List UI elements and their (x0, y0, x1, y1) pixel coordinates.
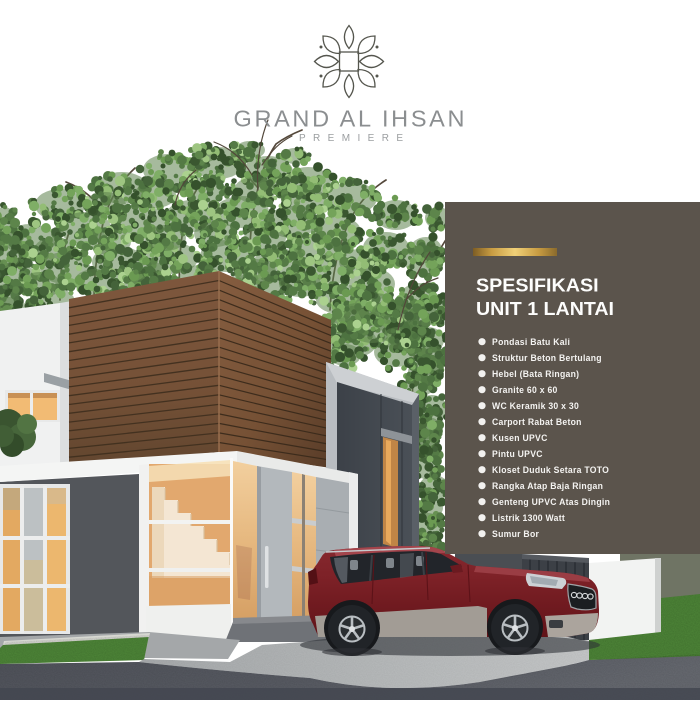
svg-text:UNIT 1 LANTAI: UNIT 1 LANTAI (476, 298, 614, 319)
svg-text:WC Keramik 30 x 30: WC Keramik 30 x 30 (492, 401, 579, 411)
svg-text:Rangka Atap Baja Ringan: Rangka Atap Baja Ringan (492, 481, 603, 491)
svg-text:Granite 60 x 60: Granite 60 x 60 (492, 385, 558, 395)
svg-text:Pondasi Batu Kali: Pondasi Batu Kali (492, 337, 570, 347)
svg-text:Struktur Beton Bertulang: Struktur Beton Bertulang (492, 353, 602, 363)
svg-text:Kloset Duduk Setara TOTO: Kloset Duduk Setara TOTO (492, 465, 609, 475)
svg-text:Listrik 1300 Watt: Listrik 1300 Watt (492, 513, 565, 523)
svg-text:Hebel (Bata Ringan): Hebel (Bata Ringan) (492, 369, 579, 379)
svg-text:Genteng UPVC Atas Dingin: Genteng UPVC Atas Dingin (492, 497, 610, 507)
svg-text:Pintu UPVC: Pintu UPVC (492, 449, 543, 459)
svg-text:GRAND AL IHSAN: GRAND AL IHSAN (234, 106, 465, 132)
svg-text:Sumur Bor: Sumur Bor (492, 529, 539, 539)
svg-text:SPESIFIKASI: SPESIFIKASI (476, 275, 599, 296)
svg-text:Carport Rabat Beton: Carport Rabat Beton (492, 417, 582, 427)
svg-text:Kusen UPVC: Kusen UPVC (492, 433, 548, 443)
